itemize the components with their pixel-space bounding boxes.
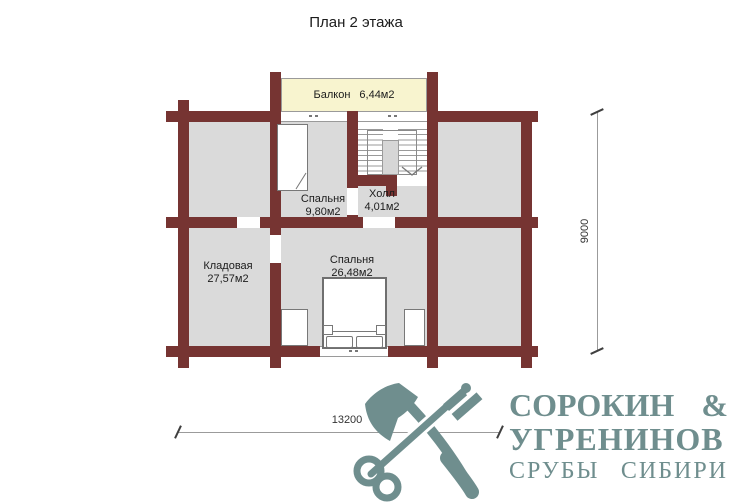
room-area: 26,48м2	[330, 267, 374, 280]
logo-tagline-word1: СРУБЫ	[509, 459, 599, 483]
floor-plan-page: План 2 этажа	[0, 0, 753, 502]
log-stub-bottom-b	[270, 357, 281, 368]
log-stub-balcony-right	[427, 72, 438, 111]
room-area: 27,57м2	[203, 273, 252, 286]
window-mark	[394, 115, 397, 117]
stair-landing-column	[382, 140, 399, 175]
pillow-left	[326, 336, 353, 348]
wall-right	[521, 111, 532, 357]
balcony-door-left	[281, 111, 347, 122]
bed-corner-right	[376, 325, 386, 335]
logo-ampersand: &	[701, 389, 728, 421]
room-area: 9,80м2	[301, 206, 345, 219]
nightstand-left	[281, 309, 308, 346]
wardrobe	[277, 124, 308, 191]
logo-name-left: СОРОКИН	[509, 389, 674, 421]
room-name: Спальня	[301, 193, 345, 206]
crossed-axe-and-key-icon	[345, 378, 495, 502]
room-label-balcony: Балкон6,44м2	[314, 89, 395, 102]
wardrobe-door-mark	[278, 125, 307, 190]
wall-stair	[348, 175, 397, 186]
log-stub-bottom-e	[521, 357, 532, 368]
wall-inner-right	[427, 111, 438, 357]
wall-left	[178, 111, 189, 357]
door-opening-storage-bedroom	[270, 235, 281, 263]
nightstand-right	[404, 309, 425, 346]
log-stub-bottom-d	[427, 357, 438, 368]
window-mark	[355, 350, 358, 352]
balcony-door-right	[358, 111, 427, 122]
room-name: Кладовая	[203, 260, 252, 273]
logo-name-line1: СОРОКИН &	[509, 389, 728, 421]
pillow-right	[356, 336, 383, 348]
window-mark	[349, 350, 352, 352]
dimension-line-vertical	[597, 112, 598, 351]
logo-tagline: СРУБЫ СИБИРИ	[509, 459, 728, 483]
door-opening-hall-bedroom	[363, 217, 395, 228]
log-stub-top-left	[178, 100, 189, 111]
logo-tagline-word2: СИБИРИ	[621, 459, 728, 483]
stair-direction-arrow-icon	[400, 166, 424, 178]
bed-corner-left	[323, 325, 333, 335]
page-title: План 2 этажа	[309, 14, 403, 31]
door-opening-bedroom-hall	[347, 188, 358, 215]
room-label-bedroom-small: Спальня 9,80м2	[301, 193, 345, 219]
room-label-hall: Холл 4,01м2	[364, 188, 399, 214]
window-mark	[388, 115, 391, 117]
room-name: Спальня	[330, 254, 374, 267]
room-label-storage: Кладовая 27,57м2	[203, 260, 252, 286]
log-stub-bottom-a	[178, 357, 189, 368]
room-area: 4,01м2	[364, 201, 399, 214]
door-opening-storage-top	[237, 217, 260, 228]
room-label-bedroom-large: Спальня 26,48м2	[330, 254, 374, 280]
room-name: Балкон	[314, 89, 351, 101]
logo-name-line2: УГРЕНИНОВ	[509, 423, 728, 455]
log-stub-balcony-left	[270, 72, 281, 111]
room-area: 6,44м2	[359, 89, 394, 101]
window-mark	[309, 115, 312, 117]
dimension-value-vertical: 9000	[579, 219, 591, 243]
room-name: Холл	[364, 188, 399, 201]
window-mark	[315, 115, 318, 117]
